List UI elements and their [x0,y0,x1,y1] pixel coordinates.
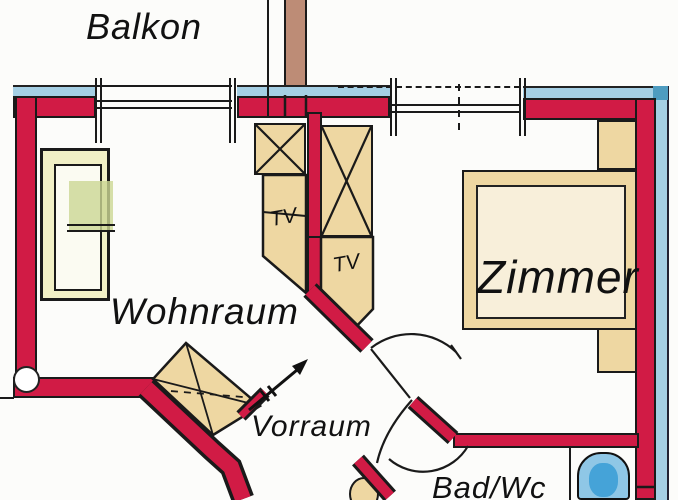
window1-jamb [234,78,236,143]
entrance-arrow-head [292,359,308,375]
label-bath: Bad/Wc [432,470,547,500]
corner-column [13,366,40,393]
bath-partition-line [569,446,571,500]
sofa-bed-mattress [54,164,102,291]
floor-plan: Balkon Wohnraum Zimmer Vorraum Bad/Wc TV… [0,0,678,500]
window1-jamb [229,78,231,143]
wall-central-diagonal-outline [310,290,367,346]
window1-glass-line [97,107,232,109]
entrance-arrow-shaft [249,365,303,410]
sideboard [153,343,260,435]
door-jamb-zimmer-outline [413,402,453,438]
bath-door-arc [389,446,468,472]
label-bedroom: Zimmer [477,250,639,304]
bath-door-leaf-arc [377,400,412,463]
window2-dashed-line [396,86,520,88]
sideboard-x [186,343,213,435]
toilet [350,478,378,500]
wall-central-diagonal [310,290,367,346]
door-jamb-bath [358,460,390,496]
entrance-arrow-fletch [261,391,269,401]
nightstand-top [597,120,637,170]
sofa-divider-line [67,230,115,232]
window2-glass-line [392,104,521,106]
label-balcony: Balkon [86,6,202,48]
window1-glass-line [97,100,232,102]
wall-central [307,112,322,293]
zimmer-door-leaf [371,349,410,398]
wall-bath [453,433,639,448]
sideboard-dash [158,390,255,398]
wall-left [15,96,37,398]
wall-entrance [146,388,243,499]
entrance-arrow-fletch [268,386,276,396]
window2-jamb [524,78,526,136]
chimney [284,0,307,97]
window2-jamb [390,78,392,136]
wardrobe-right [320,125,373,237]
bathtub-water [589,463,618,497]
zimmer-door-arc [371,334,456,352]
window1-outer-line [97,85,232,87]
window2-jamb [395,78,397,136]
sofa-divider-line [67,224,115,226]
nightstand-bottom [597,328,637,373]
wall-entrance-outline [146,388,243,499]
wardrobe-left [254,123,306,175]
window2-jamb [519,78,521,136]
window1-jamb [100,78,102,143]
sideboard-x [153,379,260,406]
label-living: Wohnraum [110,291,299,333]
label-tv-right: TV [331,250,362,278]
balcony-dashed-line [338,86,392,88]
exterior-band-right [655,86,669,500]
door-jamb-bath-outline [358,460,390,496]
zimmer-door-stop-tick [451,345,461,359]
label-tv-left: TV [268,204,299,232]
label-hall: Vorraum [251,410,372,444]
bathtub [577,452,630,500]
door-jamb-zimmer [413,402,453,438]
tv-cabinet-left [263,175,306,293]
sofa-bed-wohnraum [40,148,110,301]
window1-jamb [95,78,97,143]
window2-glass-line [392,111,521,113]
